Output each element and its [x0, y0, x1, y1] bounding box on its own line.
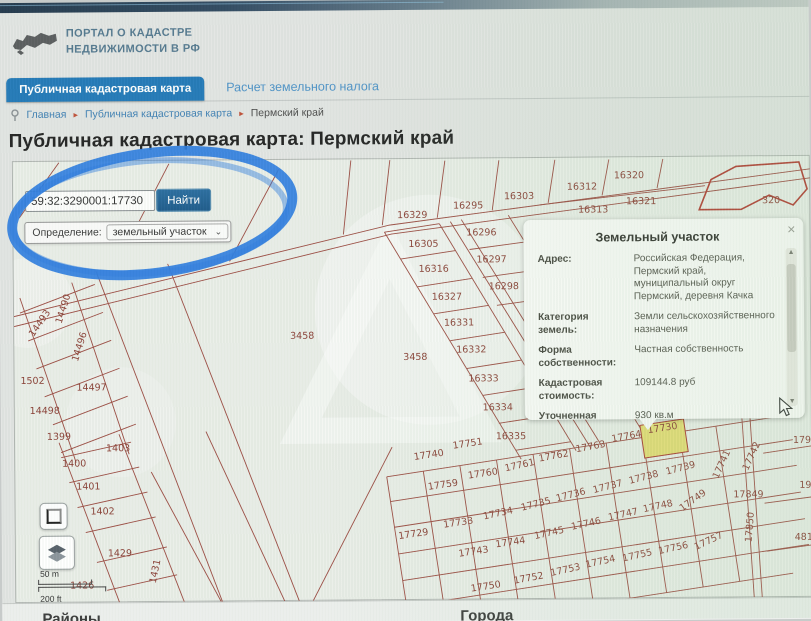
- pin-icon: [10, 109, 19, 121]
- panel-rows: Адрес: Российская Федерация, Пермский кр…: [538, 252, 780, 420]
- extent-icon: [46, 509, 61, 524]
- panel-row-value: Российская Федерация, Пермский край, мун…: [634, 252, 778, 303]
- breadcrumb-separator-icon: ▸: [239, 108, 244, 119]
- breadcrumb-current: Пермский край: [251, 107, 324, 120]
- layers-button[interactable]: [39, 536, 75, 570]
- scale-metric: 50 m: [40, 568, 106, 579]
- extent-tool-button[interactable]: [39, 503, 67, 530]
- page-title: Публичная кадастровая карта: Пермский кр…: [9, 128, 455, 153]
- main-tabs: Публичная кадастровая карта Расчет земел…: [6, 69, 809, 103]
- breadcrumb-separator-icon: ▸: [73, 109, 78, 120]
- russia-map-icon: [12, 29, 58, 57]
- panel-title: Земельный участок: [537, 229, 777, 245]
- definition-select[interactable]: земельный участок ⌄: [107, 223, 229, 240]
- site-logo-text: ПОРТАЛ О КАДАСТРЕ НЕДВИЖИМОСТИ В РФ: [66, 26, 201, 59]
- definition-value: земельный участок: [113, 226, 207, 239]
- panel-row-label: Форма собственности:: [538, 344, 624, 370]
- scroll-down-icon[interactable]: ▼: [787, 398, 798, 405]
- layers-icon: [47, 544, 67, 562]
- portal-page: ПОРТАЛ О КАДАСТРЕ НЕДВИЖИМОСТИ В РФ Публ…: [0, 0, 811, 621]
- footer-heading-cities: Города: [460, 607, 513, 621]
- breadcrumb-map[interactable]: Публичная кадастровая карта: [85, 107, 232, 120]
- panel-row-label: Категория земель:: [538, 311, 624, 337]
- parcel-info-panel: × Земельный участок Адрес: Российская Фе…: [523, 218, 805, 420]
- scale-imperial: 200 ft: [40, 593, 106, 604]
- panel-row-value: Земли сельскохозяйственного назначения: [634, 310, 778, 336]
- definition-control: Определение: земельный участок ⌄: [24, 220, 231, 244]
- browser-top-bar: [0, 0, 809, 13]
- tab-land-tax-calc[interactable]: Расчет земельного налога: [222, 73, 383, 100]
- panel-row-value: Частная собственность: [634, 343, 778, 369]
- breadcrumb: Главная ▸ Публичная кадастровая карта ▸ …: [10, 107, 323, 121]
- panel-row-value: 109144.8 руб: [635, 376, 779, 402]
- close-icon[interactable]: ×: [787, 221, 795, 237]
- panel-scrollbar[interactable]: ▲ ▼: [786, 248, 798, 406]
- breadcrumb-home[interactable]: Главная: [26, 109, 66, 121]
- scroll-up-icon[interactable]: ▲: [786, 249, 797, 256]
- panel-pointer-tail: [639, 418, 657, 430]
- definition-label: Определение:: [32, 226, 101, 239]
- find-button[interactable]: Найти: [156, 189, 211, 212]
- scrollbar-thumb[interactable]: [787, 264, 797, 352]
- panel-row-label: Уточненная площадь:: [539, 410, 625, 420]
- panel-row-label: Адрес:: [538, 253, 624, 304]
- site-logo: ПОРТАЛ О КАДАСТРЕ НЕДВИЖИМОСТИ В РФ: [12, 26, 201, 59]
- search-input[interactable]: [25, 190, 155, 212]
- map-scale: 50 m 200 ft: [38, 568, 106, 604]
- chevron-down-icon: ⌄: [215, 226, 223, 237]
- panel-row-label: Кадастровая стоимость:: [539, 377, 625, 403]
- footer-heading-districts: Районы: [42, 610, 101, 621]
- tab-public-cadastral-map[interactable]: Публичная кадастровая карта: [6, 77, 204, 103]
- photo-of-screen: ПОРТАЛ О КАДАСТРЕ НЕДВИЖИМОСТИ В РФ Публ…: [0, 0, 811, 621]
